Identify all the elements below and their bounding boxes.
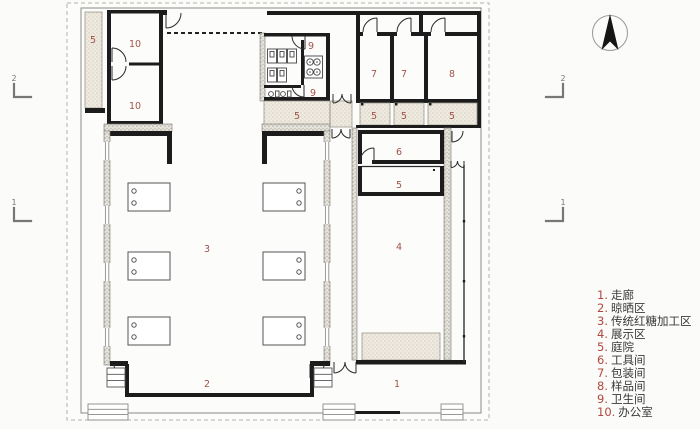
- section-marker-label: 1: [11, 198, 16, 207]
- legend-item-label: 展示区: [611, 327, 646, 341]
- legend-item-number: 8.: [597, 379, 608, 393]
- section-marker-right-top: [546, 84, 563, 97]
- wash-basins: [305, 56, 323, 78]
- room-label-wc-bottom: 9: [310, 88, 316, 99]
- room-label-courtyard-a: 5: [371, 111, 377, 122]
- room-label-office-bottom: 10: [129, 101, 141, 112]
- room-label-processing: 3: [204, 244, 210, 255]
- section-marker-left-top: [14, 84, 31, 97]
- north-arrow-icon: [593, 14, 628, 51]
- section-marker-right-bottom: [546, 208, 563, 221]
- room-label-courtyard-wc: 5: [294, 111, 300, 122]
- legend-item-label: 庭院: [611, 340, 634, 354]
- room-label-courtyard-nw: 5: [90, 35, 96, 46]
- room-label-packing-b: 7: [401, 69, 407, 80]
- legend-item-number: 5.: [597, 340, 608, 354]
- legend-item-label: 晾晒区: [611, 301, 646, 315]
- section-marker-label: 2: [560, 74, 565, 83]
- floor-plan-canvas: 2 1 2 1 5 10 10 9 9 5 7 7 8 5 5 5 6 5 4 …: [0, 0, 700, 429]
- legend-item-number: 4.: [597, 327, 608, 341]
- section-marker-label: 1: [560, 198, 565, 207]
- courtyard-b: [394, 103, 424, 125]
- room-label-wc-top: 9: [308, 41, 314, 52]
- legend-item-label: 办公室: [618, 405, 653, 419]
- legend-item-number: 1.: [597, 288, 608, 302]
- legend-item-number: 3.: [597, 314, 608, 328]
- legend-item-label: 样品间: [611, 379, 646, 393]
- legend-item-number: 7.: [597, 366, 608, 380]
- legend-item-label: 卫生间: [611, 392, 646, 406]
- legend-item-number: 2.: [597, 301, 608, 315]
- room-label-courtyard-c: 5: [449, 111, 455, 122]
- room-label-courtyard-b: 5: [401, 111, 407, 122]
- section-marker-left-bottom: [14, 208, 31, 221]
- legend-item-label: 包装间: [611, 366, 646, 380]
- room-label-sample: 8: [449, 69, 455, 80]
- section-marker-label: 2: [11, 74, 16, 83]
- floor-plan-page: 2 1 2 1 5 10 10 9 9 5 7 7 8 5 5 5 6 5 4 …: [0, 0, 700, 429]
- courtyard-nw: [85, 12, 105, 113]
- legend-item-number: 6.: [597, 353, 608, 367]
- exhibition-floor-hatch: [362, 333, 440, 360]
- legend-item-number: 9.: [597, 392, 608, 406]
- room-label-office-top: 10: [129, 39, 141, 50]
- room-label-corridor: 1: [394, 379, 400, 390]
- legend-item-label: 工具间: [611, 353, 646, 367]
- room-label-packing-a: 7: [371, 69, 377, 80]
- room-label-drying: 2: [204, 379, 210, 390]
- legend-item-label: 走廊: [611, 288, 634, 302]
- room-label-courtyard-mid: 5: [396, 180, 402, 191]
- legend-item-number: 10.: [597, 405, 615, 419]
- room-label-exhibition: 4: [396, 242, 402, 253]
- room-label-tools: 6: [396, 147, 402, 158]
- legend-item-label: 传统红糖加工区: [611, 314, 692, 328]
- legend: 1.走廊 2.晾晒区 3.传统红糖加工区 4.展示区 5.庭院 6.工具间 7.…: [597, 289, 691, 419]
- legend-item: 10.办公室: [597, 406, 691, 419]
